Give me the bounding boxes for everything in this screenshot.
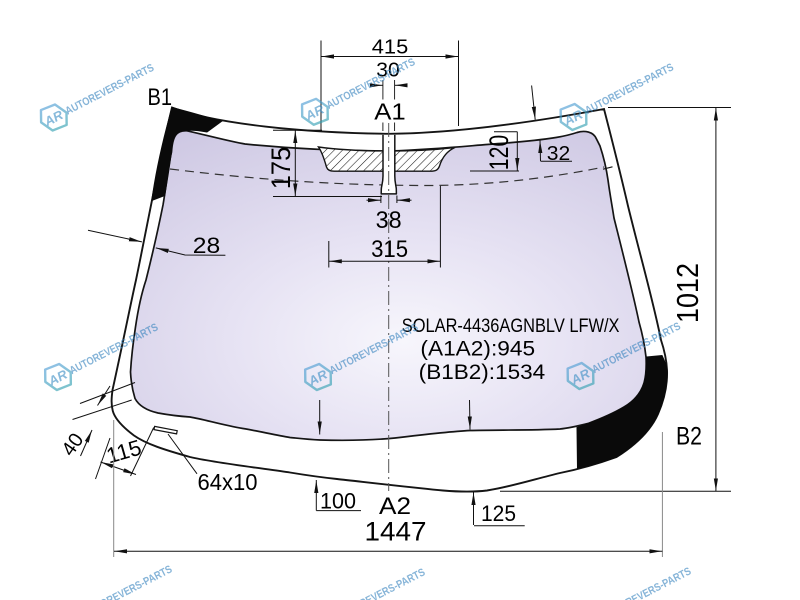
svg-text:175: 175 <box>266 147 296 190</box>
svg-text:1447: 1447 <box>365 517 427 547</box>
svg-text:(B1B2):1534: (B1B2):1534 <box>419 360 546 384</box>
svg-text:64x10: 64x10 <box>198 469 258 495</box>
svg-text:B1: B1 <box>148 84 173 111</box>
svg-text:32: 32 <box>547 142 571 165</box>
svg-text:(A1A2):945: (A1A2):945 <box>420 337 535 361</box>
svg-text:100: 100 <box>320 489 356 514</box>
svg-text:120: 120 <box>484 135 514 171</box>
svg-text:125: 125 <box>481 501 516 526</box>
svg-text:415: 415 <box>372 36 409 59</box>
svg-text:38: 38 <box>376 207 402 234</box>
svg-text:315: 315 <box>371 236 408 263</box>
svg-text:A1: A1 <box>374 99 406 125</box>
svg-text:1012: 1012 <box>670 263 705 323</box>
svg-text:SOLAR-4436AGNBLV LFW/X: SOLAR-4436AGNBLV LFW/X <box>402 315 620 337</box>
svg-text:B2: B2 <box>676 423 702 451</box>
svg-text:28: 28 <box>193 233 221 258</box>
